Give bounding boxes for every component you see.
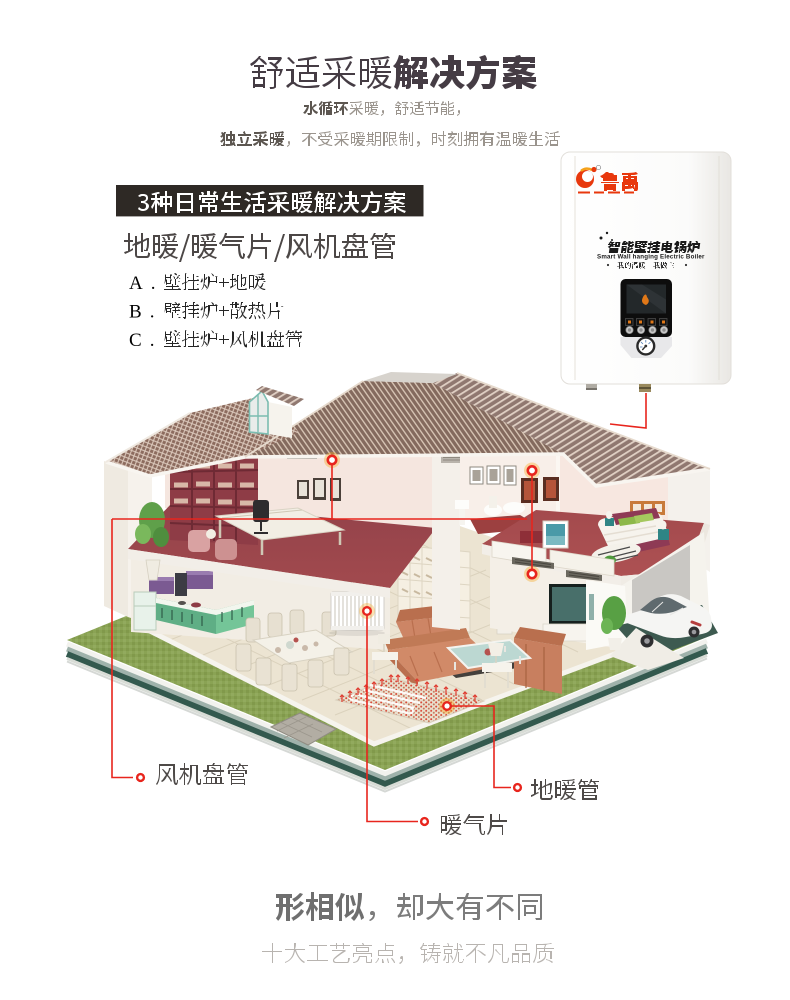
svg-text:C.: C. <box>129 330 154 351</box>
svg-text:A.: A. <box>129 273 155 294</box>
svg-text:Smart Wall hanging Electric Bo: Smart Wall hanging Electric Boiler <box>597 254 705 261</box>
svg-text:B.: B. <box>129 302 154 323</box>
